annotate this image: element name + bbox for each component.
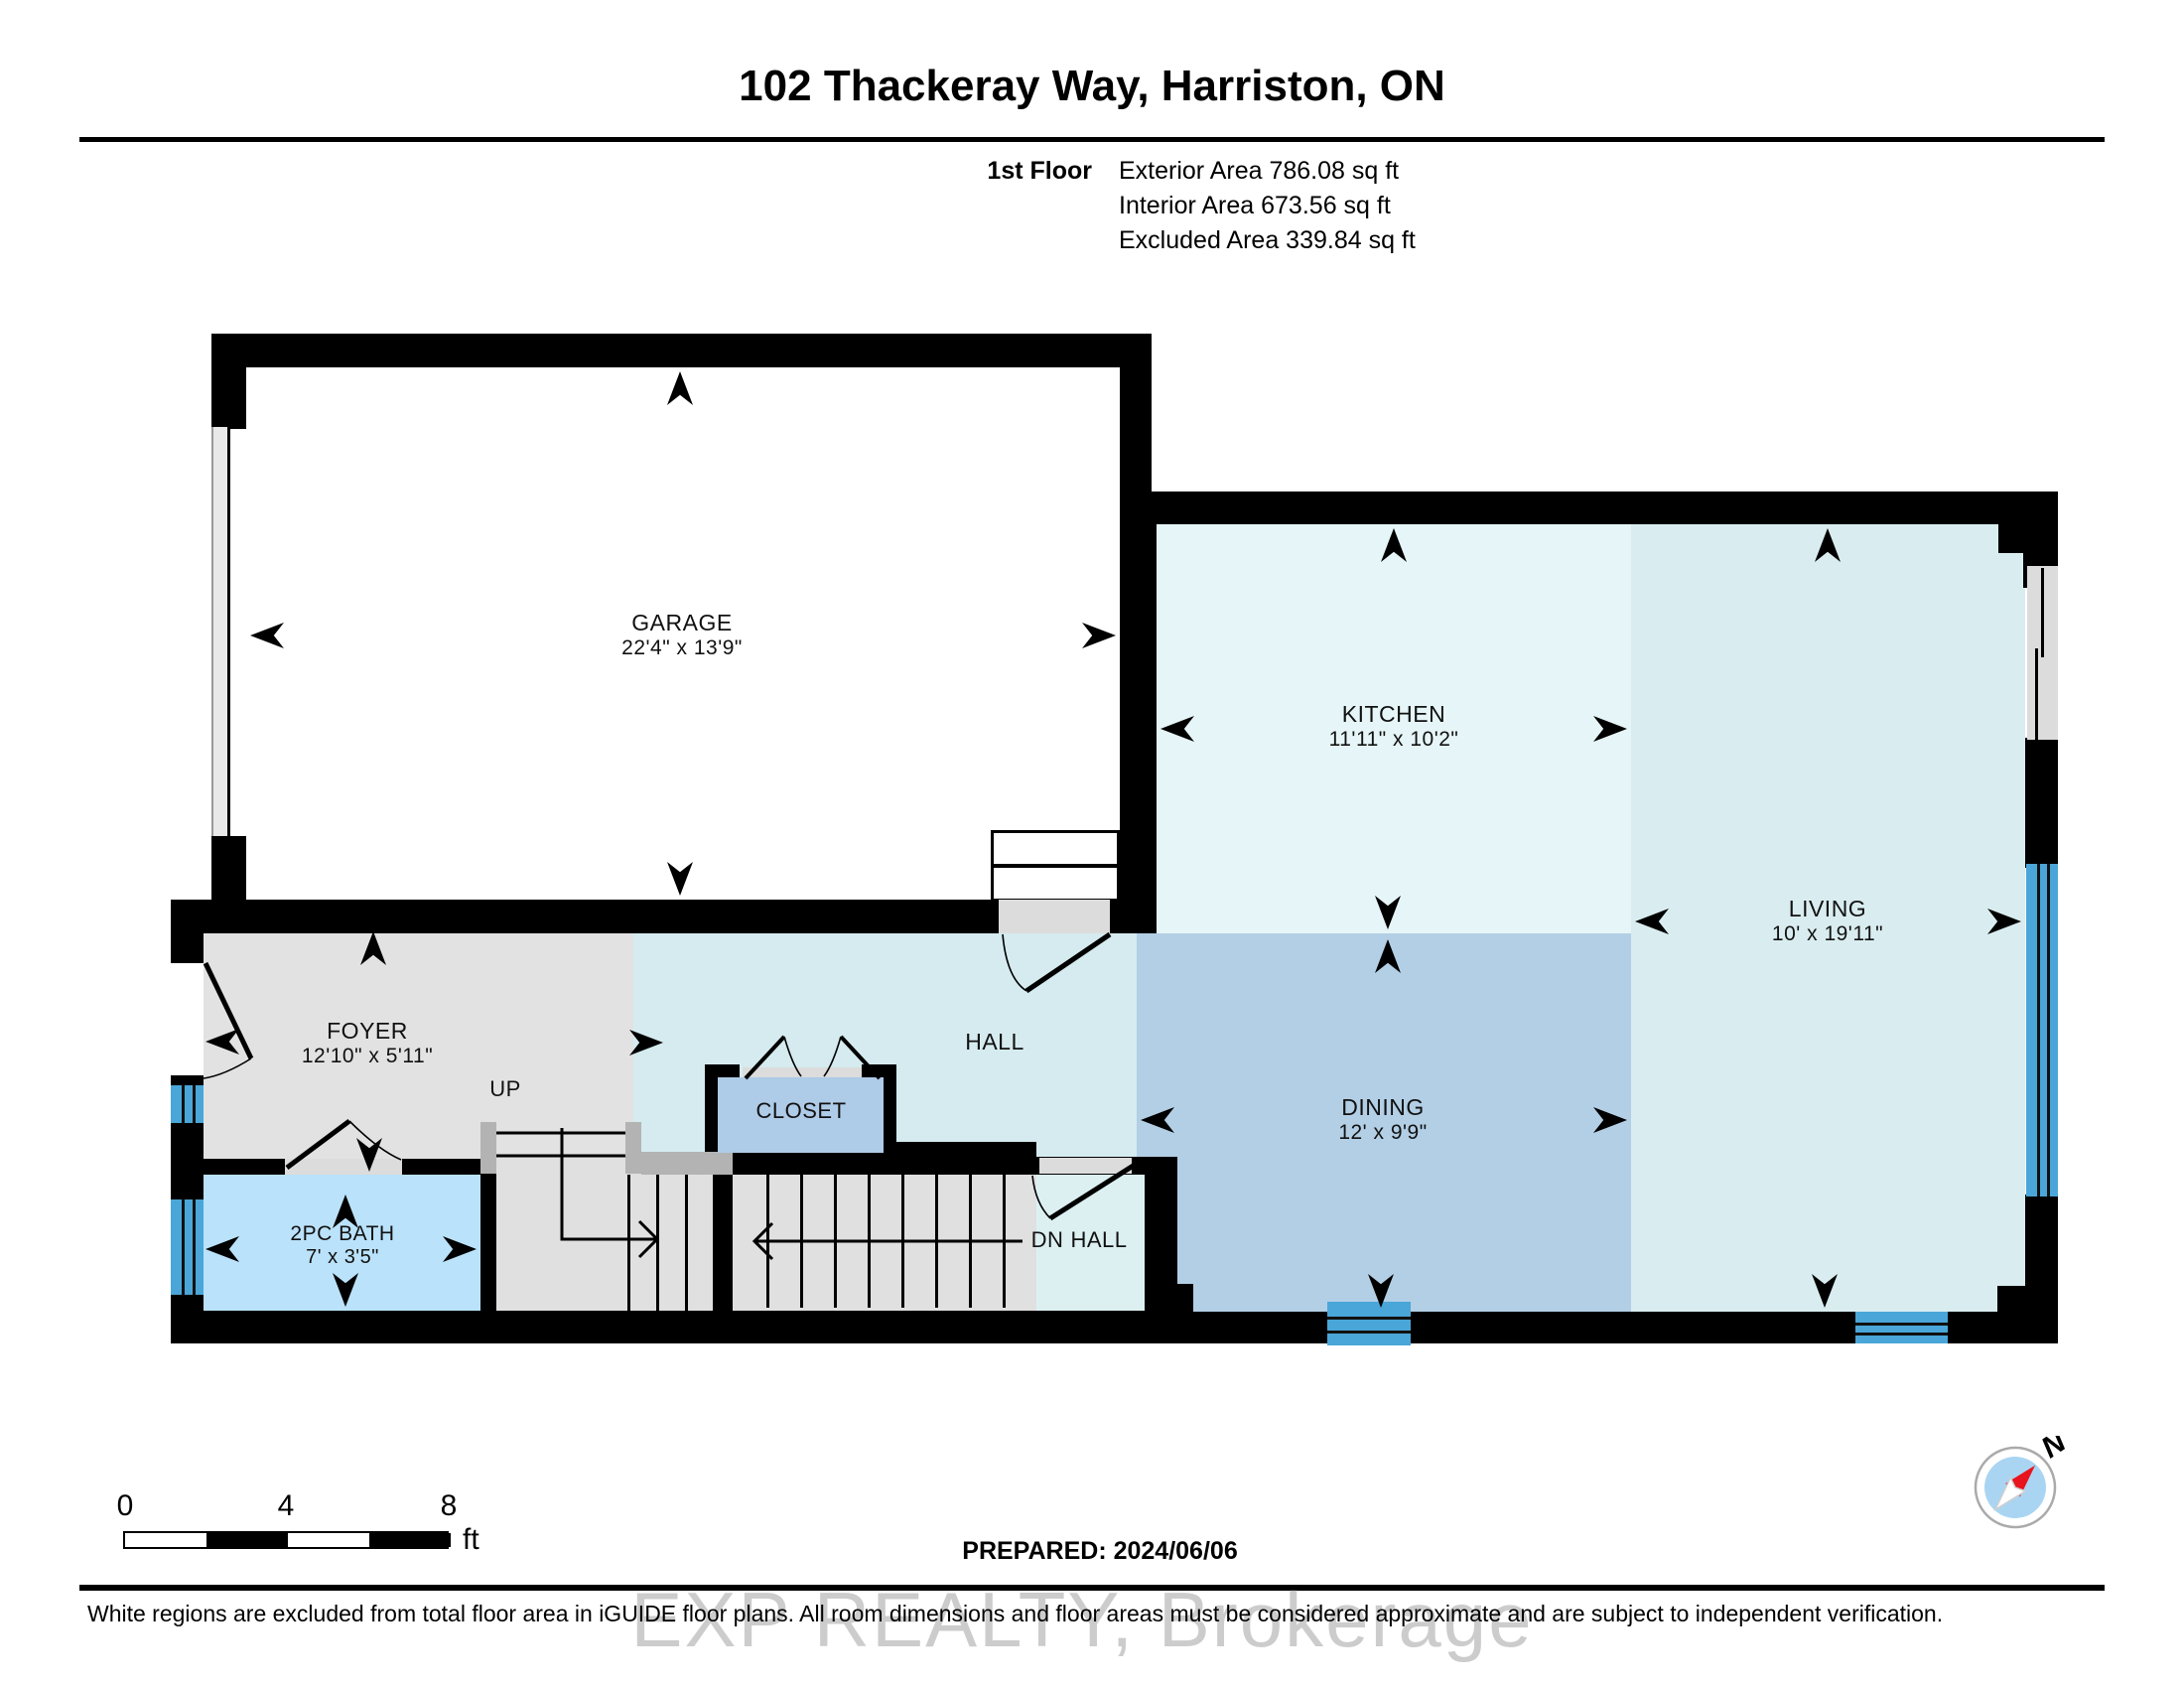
kitchen-dims: 11'11" x 10'2" (1329, 728, 1459, 752)
room-label-foyer: FOYER 12'10" x 5'11" (302, 1018, 433, 1068)
plan-line-overlay (0, 0, 2184, 1688)
scale-segment (369, 1533, 451, 1547)
dining-name: DINING (1338, 1094, 1427, 1121)
dn-hall-door-leaf (1050, 1165, 1135, 1218)
garage-door-leaf (1026, 934, 1110, 991)
bath-name: 2PC BATH (290, 1222, 394, 1246)
room-label-dn-hall: HALL (1070, 1227, 1127, 1253)
closet-bifold-left-arc (784, 1037, 801, 1076)
scale-tick-0: 0 (117, 1489, 134, 1523)
closet-bifold-right-leaf (841, 1037, 880, 1078)
room-label-living: LIVING 10' x 19'11" (1772, 896, 1883, 946)
kitchen-name: KITCHEN (1329, 701, 1459, 728)
entry-door-arc (204, 1058, 251, 1078)
stairs-dn-label: DN (1031, 1227, 1064, 1253)
scale-unit: ft (463, 1523, 479, 1557)
living-dims: 10' x 19'11" (1772, 922, 1883, 946)
scale-tick-8: 8 (441, 1489, 458, 1523)
room-label-bath: 2PC BATH 7' x 3'5" (290, 1222, 394, 1269)
disclaimer-text: White regions are excluded from total fl… (87, 1601, 2132, 1627)
foyer-name: FOYER (302, 1018, 433, 1045)
scale-segment (206, 1533, 288, 1547)
bath-dims: 7' x 3'5" (290, 1246, 394, 1269)
living-name: LIVING (1772, 896, 1883, 922)
foyer-dims: 12'10" x 5'11" (302, 1045, 433, 1068)
closet-bifold-left-leaf (746, 1037, 784, 1078)
stairs-up-label: UP (489, 1076, 521, 1102)
scale-segment (125, 1533, 206, 1547)
bath-door-leaf (287, 1121, 349, 1168)
garage-name: GARAGE (621, 610, 743, 636)
garage-door-arc (1003, 934, 1026, 991)
room-label-kitchen: KITCHEN 11'11" x 10'2" (1329, 701, 1459, 752)
dining-dims: 12' x 9'9" (1338, 1121, 1427, 1145)
floor-plan-page: 102 Thackeray Way, Harriston, ON 1st Flo… (0, 0, 2184, 1688)
closet-bifold-right-arc (824, 1037, 841, 1076)
garage-dims: 22'4" x 13'9" (621, 636, 743, 660)
room-label-dining: DINING 12' x 9'9" (1338, 1094, 1427, 1145)
scale-tick-4: 4 (278, 1489, 295, 1523)
dn-hall-door-arc (1032, 1176, 1050, 1218)
room-label-garage: GARAGE 22'4" x 13'9" (621, 610, 743, 660)
compass-icon: N (1961, 1436, 2080, 1550)
scale-bar (123, 1531, 449, 1549)
room-label-hall: HALL (965, 1029, 1024, 1055)
prepared-date: PREPARED: 2024/06/06 (962, 1537, 1237, 1566)
entry-door-leaf (205, 963, 251, 1058)
bath-door-arc (349, 1121, 401, 1160)
scale-segment (288, 1533, 369, 1547)
room-label-closet: CLOSET (755, 1098, 846, 1124)
